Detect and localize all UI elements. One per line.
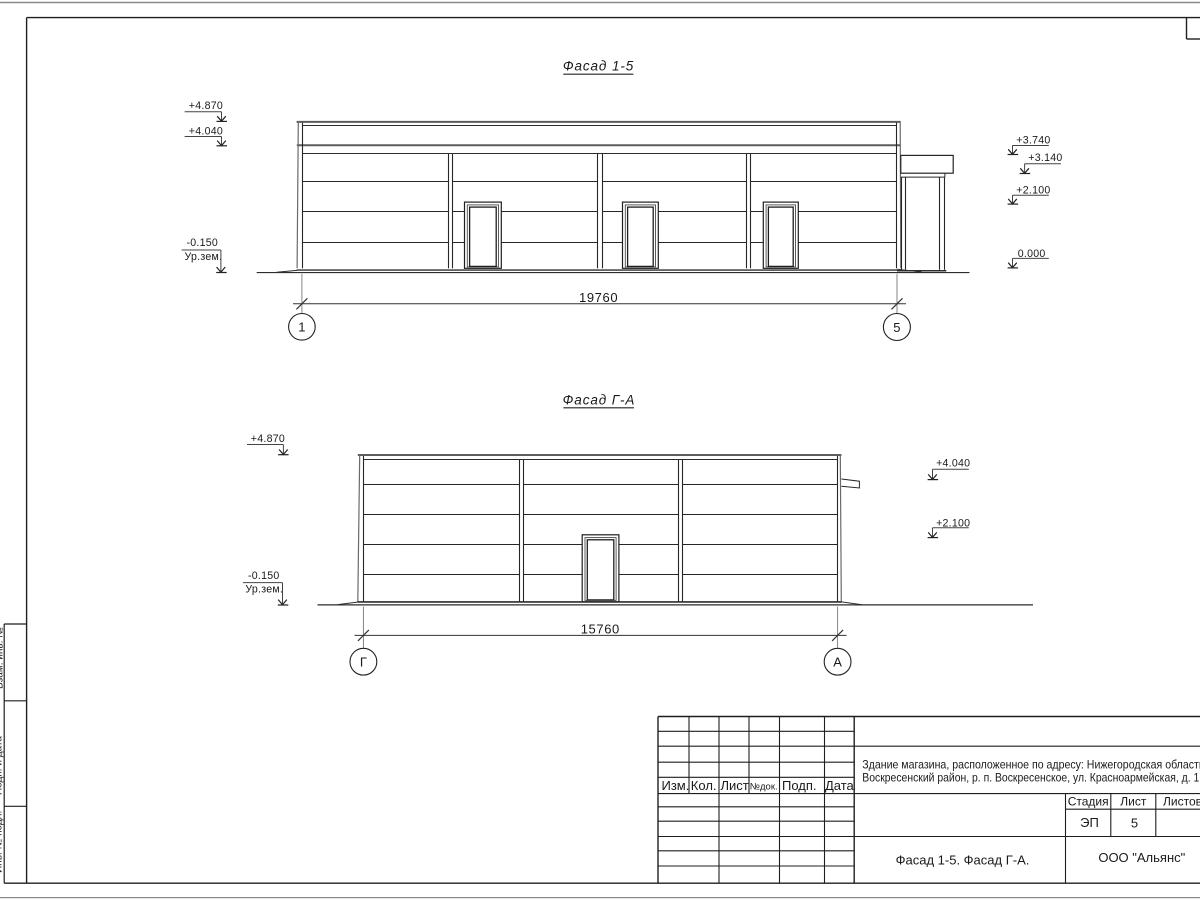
svg-text:Фасад 1-5: Фасад 1-5 — [563, 59, 634, 74]
svg-text:+4.870: +4.870 — [251, 433, 285, 445]
svg-text:Подп.: Подп. — [782, 778, 817, 793]
svg-text:Лист: Лист — [1120, 795, 1147, 809]
svg-text:-0.150: -0.150 — [248, 570, 280, 582]
svg-text:+2.100: +2.100 — [1016, 184, 1050, 196]
svg-text:Лист: Лист — [721, 778, 749, 793]
svg-text:+3.740: +3.740 — [1016, 135, 1050, 147]
svg-text:Ур.зем.: Ур.зем. — [245, 584, 283, 596]
svg-text:№док.: №док. — [750, 782, 778, 793]
svg-text:Изм.: Изм. — [662, 778, 690, 793]
svg-text:ООО "Альянс": ООО "Альянс" — [1098, 850, 1185, 865]
svg-text:+4.870: +4.870 — [189, 100, 223, 112]
svg-text:Взам. инв. №: Взам. инв. № — [0, 627, 6, 689]
svg-text:Стадия: Стадия — [1068, 795, 1109, 809]
svg-text:19760: 19760 — [579, 290, 618, 305]
svg-text:Инв. № подл.: Инв. № подл. — [0, 811, 5, 873]
svg-text:Фасад 1-5. Фасад Г-А.: Фасад 1-5. Фасад Г-А. — [896, 852, 1030, 867]
svg-text:1: 1 — [298, 320, 305, 335]
svg-text:Дата: Дата — [825, 778, 855, 793]
svg-text:+4.040: +4.040 — [936, 458, 970, 470]
svg-text:Кол.: Кол. — [691, 778, 717, 793]
svg-text:ЭП: ЭП — [1080, 815, 1099, 830]
svg-text:15760: 15760 — [581, 621, 620, 636]
svg-text:-0.150: -0.150 — [186, 237, 218, 249]
svg-text:+3.140: +3.140 — [1028, 152, 1062, 164]
svg-text:Г: Г — [360, 655, 367, 670]
svg-text:Ур.зем.: Ур.зем. — [185, 251, 223, 263]
svg-text:Здание магазина, расположенное: Здание магазина, расположенное по адресу… — [862, 757, 1200, 771]
svg-text:5: 5 — [893, 320, 900, 335]
svg-text:Листов: Листов — [1163, 795, 1200, 809]
svg-text:Фасад Г-А: Фасад Г-А — [563, 393, 636, 408]
svg-text:Воскресенский район, р. п. Вос: Воскресенский район, р. п. Воскресенское… — [862, 771, 1199, 785]
svg-text:+4.040: +4.040 — [189, 125, 223, 137]
svg-text:5: 5 — [1131, 815, 1138, 830]
svg-text:А: А — [833, 655, 842, 670]
svg-text:Подп. и дата: Подп. и дата — [0, 736, 5, 795]
